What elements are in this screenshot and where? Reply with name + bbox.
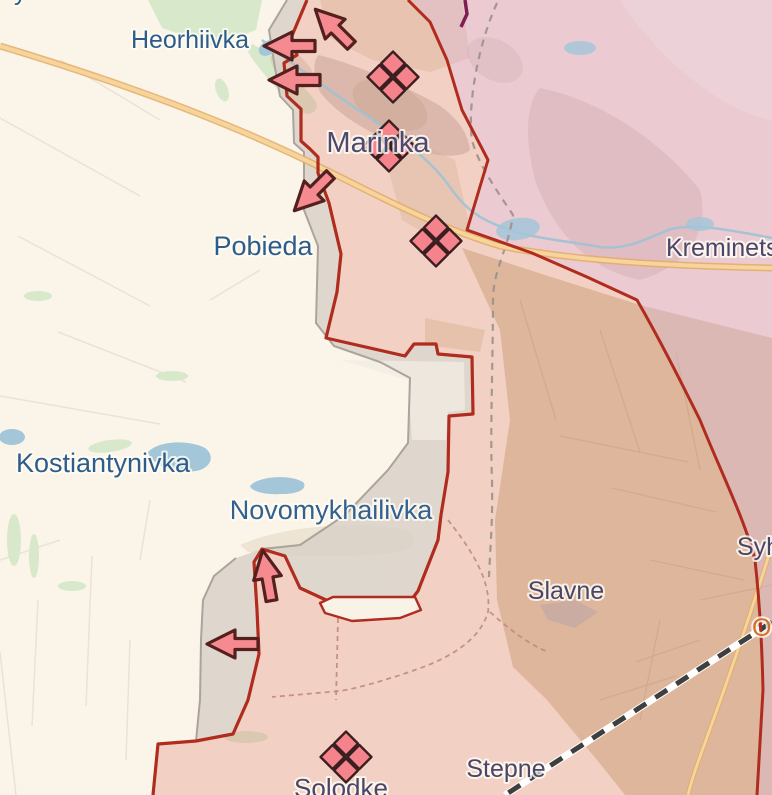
town-label-pobieda: Pobieda (213, 231, 313, 261)
town-label-slavne: Slavne (528, 577, 604, 605)
town-label-heorhiivka: Heorhiivka (131, 26, 249, 54)
town-label-novomykhailivka: Novomykhailivka (230, 495, 434, 525)
town-label-syhnalne: Syhnalne (737, 533, 772, 561)
map-viewport[interactable]: HeorhiivkaMarinkaPobiedaKostiantynivkaNo… (0, 0, 772, 795)
town-label-solodke: Solodke (294, 773, 388, 795)
frontline-map-svg[interactable]: HeorhiivkaMarinkaPobiedaKostiantynivkaNo… (0, 0, 772, 795)
town-label-stepne: Stepne (466, 755, 545, 783)
town-label-partial-top-left-label: y (14, 0, 27, 6)
town-label-partial-orange-label: O (752, 614, 771, 642)
town-label-kostiantynivka: Kostiantynivka (16, 448, 191, 478)
town-label-marinka: Marinka (326, 127, 430, 159)
town-label-kreminets: Kreminets (666, 234, 772, 262)
